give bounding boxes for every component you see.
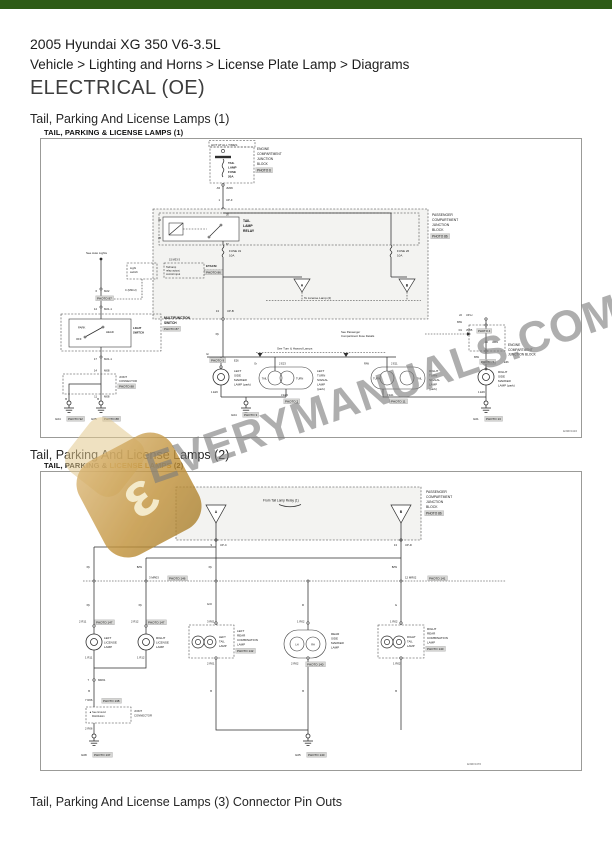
svg-text:M22: M22 bbox=[104, 289, 110, 293]
svg-text:2 R06: 2 R06 bbox=[85, 727, 93, 731]
svg-text:PHOTO 86: PHOTO 86 bbox=[206, 271, 221, 275]
svg-text:Pp: Pp bbox=[216, 332, 220, 336]
svg-text:LEFT: LEFT bbox=[237, 629, 245, 633]
ground-g01 bbox=[481, 401, 491, 412]
svg-text:UP-H: UP-H bbox=[466, 313, 472, 317]
svg-text:RELAY: RELAY bbox=[243, 229, 255, 233]
svg-text:2 R02: 2 R02 bbox=[291, 662, 299, 666]
svg-text:A5: A5 bbox=[217, 186, 221, 190]
svg-text:PHOTO 9: PHOTO 9 bbox=[211, 359, 224, 363]
svg-text:See Auto Lights: See Auto Lights bbox=[86, 251, 108, 255]
svg-text:REAR: REAR bbox=[237, 634, 246, 638]
svg-text:PASSENGER: PASSENGER bbox=[426, 490, 447, 494]
svg-text:relay actuat.: relay actuat. bbox=[166, 269, 180, 273]
svg-text:PHOTO 6: PHOTO 6 bbox=[257, 169, 271, 173]
svg-text:BLOCK: BLOCK bbox=[432, 228, 444, 232]
svg-text:COMPARTMENT: COMPARTMENT bbox=[257, 152, 282, 156]
svg-text:7 R06: 7 R06 bbox=[85, 698, 93, 702]
svg-text:Gr: Gr bbox=[206, 352, 209, 356]
svg-text:From Tail Lamp Relay (1): From Tail Lamp Relay (1) bbox=[263, 499, 299, 503]
footer-caption: Tail, Parking And License Lamps (3) Conn… bbox=[30, 795, 342, 809]
svg-text:M08: M08 bbox=[104, 369, 110, 373]
svg-text:REAR: REAR bbox=[331, 632, 340, 636]
svg-text:FUSE 26: FUSE 26 bbox=[397, 249, 410, 253]
svg-text:TAIL: TAIL bbox=[243, 219, 250, 223]
svg-text:B/W: B/W bbox=[457, 320, 462, 324]
svg-text:switch: switch bbox=[130, 270, 138, 274]
svg-text:LAMP: LAMP bbox=[331, 646, 339, 650]
svg-text:MARKER: MARKER bbox=[234, 378, 248, 382]
svg-text:17: 17 bbox=[94, 357, 98, 361]
svg-text:Pp: Pp bbox=[139, 603, 143, 607]
svg-text:PHOTO 88: PHOTO 88 bbox=[119, 385, 134, 389]
svg-text:LEFT: LEFT bbox=[104, 636, 112, 640]
svg-text:JUNCTION: JUNCTION bbox=[426, 500, 444, 504]
svg-text:12 MR02: 12 MR02 bbox=[405, 576, 417, 580]
ground-g04 bbox=[64, 401, 74, 412]
svg-text:2 R12: 2 R12 bbox=[131, 620, 139, 624]
svg-text:3 MR03: 3 MR03 bbox=[149, 576, 159, 580]
svg-text:TAIL: TAIL bbox=[228, 161, 235, 165]
svg-text:JUNCTION: JUNCTION bbox=[432, 223, 450, 227]
svg-text:PHOTO 147: PHOTO 147 bbox=[148, 621, 165, 625]
svg-text:MR01: MR01 bbox=[98, 678, 106, 682]
svg-text:LAMP: LAMP bbox=[407, 644, 415, 648]
ground-g05-photo140 bbox=[303, 734, 313, 745]
svg-text:PHOTO 138: PHOTO 138 bbox=[103, 699, 120, 703]
svg-text:PARK: PARK bbox=[78, 326, 86, 330]
svg-text:14: 14 bbox=[94, 307, 98, 311]
svg-text:13: 13 bbox=[216, 309, 220, 313]
svg-text:R/W: R/W bbox=[364, 362, 370, 366]
svg-text:B: B bbox=[395, 689, 397, 693]
svg-text:LICENSE: LICENSE bbox=[156, 641, 169, 645]
svg-text:1 R11: 1 R11 bbox=[85, 656, 93, 660]
svg-text:JOINT: JOINT bbox=[134, 709, 142, 713]
svg-text:1 R02: 1 R02 bbox=[390, 620, 398, 624]
svg-text:M21-1: M21-1 bbox=[104, 307, 112, 311]
svg-text:MARKER: MARKER bbox=[498, 379, 512, 383]
see-turn-hazard-line bbox=[256, 353, 386, 358]
svg-text:ETACM: ETACM bbox=[206, 264, 217, 268]
svg-text:1 E36: 1 E36 bbox=[478, 390, 485, 394]
svg-text:TAIL: TAIL bbox=[407, 640, 413, 644]
svg-text:1 R02: 1 R02 bbox=[393, 662, 401, 666]
svg-text:B/W: B/W bbox=[137, 565, 143, 569]
svg-text:22: 22 bbox=[459, 313, 462, 317]
svg-text:G04: G04 bbox=[55, 417, 61, 421]
svg-text:B: B bbox=[88, 689, 90, 693]
svg-text:D1: D1 bbox=[459, 328, 463, 332]
svg-text:Tail lamp: Tail lamp bbox=[166, 265, 177, 269]
diagram1-header: TAIL, PARKING & LICENSE LAMPS (1) bbox=[44, 128, 183, 137]
svg-text:COMBINATION: COMBINATION bbox=[237, 638, 258, 642]
svg-text:G01: G01 bbox=[473, 417, 479, 421]
svg-text:SIDE: SIDE bbox=[331, 637, 338, 641]
ground-g05 bbox=[96, 401, 106, 412]
left-license-lamp bbox=[86, 634, 102, 650]
svg-text:LAMP: LAMP bbox=[219, 644, 227, 648]
svg-text:R: R bbox=[302, 603, 304, 607]
svg-text:PHOTO 140: PHOTO 140 bbox=[307, 663, 324, 667]
breadcrumb: Vehicle > Lighting and Horns > License P… bbox=[30, 57, 409, 72]
manual-page: 2005 Hyundai XG 350 V6-3.5L Vehicle > Li… bbox=[0, 0, 612, 866]
svg-text:LEFT: LEFT bbox=[219, 635, 226, 639]
doc-title: 2005 Hyundai XG 350 V6-3.5L bbox=[30, 36, 221, 52]
svg-text:PHOTO 86: PHOTO 86 bbox=[426, 512, 442, 516]
svg-text:E39F3476: E39F3476 bbox=[467, 762, 481, 766]
svg-text:LAMP: LAMP bbox=[104, 645, 112, 649]
left-ground-wiring bbox=[86, 650, 146, 734]
svg-text:LAMP: LAMP bbox=[243, 224, 253, 228]
svg-text:1: 1 bbox=[218, 198, 220, 202]
svg-text:RIGHT: RIGHT bbox=[427, 627, 437, 631]
svg-text:COMPARTMENT: COMPARTMENT bbox=[426, 495, 452, 499]
svg-text:BLOCK: BLOCK bbox=[426, 505, 438, 509]
svg-text:FUSE 31: FUSE 31 bbox=[229, 249, 242, 253]
svg-text:JUNCTION: JUNCTION bbox=[257, 157, 274, 161]
svg-text:UP-B: UP-B bbox=[227, 309, 234, 313]
svg-text:SIDE: SIDE bbox=[234, 374, 241, 378]
tail-lamp-relay bbox=[163, 217, 239, 241]
svg-text:LH: LH bbox=[295, 644, 298, 647]
svg-text:2 R01: 2 R01 bbox=[207, 662, 215, 666]
svg-text:Distribution: Distribution bbox=[92, 715, 105, 718]
left-rear-combination-lamp bbox=[189, 625, 234, 658]
svg-text:PHOTO 140: PHOTO 140 bbox=[308, 753, 325, 757]
svg-text:E39F3416: E39F3416 bbox=[563, 429, 577, 433]
svg-text:2 R11: 2 R11 bbox=[79, 620, 87, 624]
svg-text:B: B bbox=[210, 689, 212, 693]
svg-text:LAMP: LAMP bbox=[427, 641, 435, 645]
svg-text:PHOTO 137: PHOTO 137 bbox=[94, 753, 111, 757]
svg-text:control input: control input bbox=[166, 272, 180, 276]
svg-text:Compartment Fuse Details: Compartment Fuse Details bbox=[341, 334, 375, 338]
svg-text:LAMP: LAMP bbox=[156, 645, 164, 649]
svg-text:10A: 10A bbox=[397, 254, 402, 258]
right-license-lamp bbox=[138, 634, 154, 650]
svg-text:M21-1: M21-1 bbox=[104, 357, 112, 361]
svg-text:LAMP (park): LAMP (park) bbox=[234, 383, 251, 387]
svg-text:RIGHT: RIGHT bbox=[156, 636, 166, 640]
svg-text:1 E26: 1 E26 bbox=[211, 390, 218, 394]
right-ground-wiring bbox=[215, 657, 402, 734]
svg-text:LAMP: LAMP bbox=[237, 643, 245, 647]
svg-text:BLOCK: BLOCK bbox=[257, 162, 269, 166]
svg-text:LIGHT: LIGHT bbox=[133, 326, 142, 330]
svg-text:B/W: B/W bbox=[392, 565, 398, 569]
svg-text:JM05: JM05 bbox=[466, 328, 473, 332]
svg-text:TAIL: TAIL bbox=[262, 377, 268, 381]
rear-side-marker-lamp bbox=[284, 630, 326, 658]
svg-text:TAIL: TAIL bbox=[219, 640, 225, 644]
svg-text:15 M33-3: 15 M33-3 bbox=[169, 258, 181, 262]
svg-text:G: G bbox=[395, 603, 397, 607]
svg-text:PHOTO 86: PHOTO 86 bbox=[432, 235, 448, 239]
svg-text:6: 6 bbox=[95, 289, 97, 293]
svg-text:To License Lamp (2): To License Lamp (2) bbox=[304, 296, 331, 300]
svg-text:RIGHT: RIGHT bbox=[407, 635, 416, 639]
svg-text:Pp: Pp bbox=[209, 565, 213, 569]
svg-text:PASSENGER: PASSENGER bbox=[432, 213, 453, 217]
svg-text:2 E23: 2 E23 bbox=[279, 362, 286, 366]
svg-text:PHOTO 142: PHOTO 142 bbox=[237, 649, 254, 653]
multifunction-switch bbox=[61, 314, 161, 374]
svg-text:G/O: G/O bbox=[207, 602, 213, 606]
svg-text:1 R12: 1 R12 bbox=[137, 656, 145, 660]
svg-text:UP-F: UP-F bbox=[226, 198, 233, 202]
svg-text:M08: M08 bbox=[104, 395, 110, 399]
svg-text:Pp: Pp bbox=[87, 603, 91, 607]
svg-text:PHOTO 141: PHOTO 141 bbox=[429, 577, 446, 581]
svg-text:HEAD: HEAD bbox=[106, 330, 114, 334]
svg-text:COMBINATION: COMBINATION bbox=[427, 636, 448, 640]
svg-text:LEFT: LEFT bbox=[317, 369, 325, 373]
svg-text:PHOTO 147: PHOTO 147 bbox=[96, 621, 113, 625]
svg-text:CONNECTOR: CONNECTOR bbox=[134, 714, 152, 718]
ground-g08 bbox=[89, 734, 99, 745]
svg-text:B: B bbox=[97, 397, 99, 401]
svg-text:E26: E26 bbox=[234, 359, 239, 363]
svg-text:Pp: Pp bbox=[87, 565, 91, 569]
svg-text:UP-D: UP-D bbox=[405, 543, 412, 547]
svg-text:20A: 20A bbox=[228, 175, 234, 179]
svg-text:REAR: REAR bbox=[427, 632, 436, 636]
svg-text:CONNECTOR: CONNECTOR bbox=[119, 379, 137, 383]
svg-text:SWITCH: SWITCH bbox=[164, 321, 177, 325]
svg-text:SIGNAL: SIGNAL bbox=[317, 378, 328, 382]
svg-text:PHOTO 87: PHOTO 87 bbox=[164, 327, 179, 331]
svg-text:◄ See Ground: ◄ See Ground bbox=[89, 711, 106, 714]
svg-text:PHOTO 146: PHOTO 146 bbox=[169, 577, 186, 581]
svg-text:RH: RH bbox=[311, 644, 315, 647]
svg-text:TURN: TURN bbox=[317, 374, 325, 378]
svg-text:PHOTO 87: PHOTO 87 bbox=[97, 297, 112, 301]
svg-text:HOT AT ALL TIMES: HOT AT ALL TIMES bbox=[211, 143, 237, 147]
svg-text:13: 13 bbox=[394, 543, 398, 547]
svg-text:SWITCH: SWITCH bbox=[133, 331, 144, 335]
svg-text:FUSE: FUSE bbox=[228, 170, 236, 174]
svg-text:MULTIFUNCTION: MULTIFUNCTION bbox=[164, 316, 191, 320]
svg-text:G05: G05 bbox=[295, 753, 301, 757]
svg-text:9: 9 bbox=[210, 543, 212, 547]
svg-text:UP-C: UP-C bbox=[220, 543, 227, 547]
svg-text:14: 14 bbox=[94, 369, 98, 373]
svg-text:ENGINE: ENGINE bbox=[257, 147, 269, 151]
svg-text:PHOTO 92: PHOTO 92 bbox=[68, 417, 83, 421]
svg-text:See Turn & Hazard Lamps: See Turn & Hazard Lamps bbox=[277, 347, 313, 351]
right-rear-combination-lamp bbox=[378, 625, 424, 658]
svg-text:LAMP (park): LAMP (park) bbox=[498, 384, 515, 388]
svg-text:7: 7 bbox=[87, 678, 89, 682]
svg-text:PHOTO 140: PHOTO 140 bbox=[427, 647, 444, 651]
svg-text:OFF: OFF bbox=[76, 337, 82, 341]
svg-text:LICENSE: LICENSE bbox=[104, 641, 117, 645]
svg-text:10A: 10A bbox=[229, 254, 234, 258]
svg-text:1 R02: 1 R02 bbox=[297, 620, 305, 624]
svg-text:LAMP: LAMP bbox=[228, 166, 237, 170]
svg-text:Gr: Gr bbox=[254, 362, 257, 366]
svg-text:COMPARTMENT: COMPARTMENT bbox=[432, 218, 458, 222]
svg-text:B: B bbox=[65, 397, 67, 401]
svg-text:C (M33-2): C (M33-2) bbox=[125, 288, 137, 292]
browser-theme-bar bbox=[0, 0, 612, 9]
svg-text:PHOTO 13: PHOTO 13 bbox=[486, 417, 501, 421]
page-heading: ELECTRICAL (OE) bbox=[30, 77, 205, 100]
section1-title: Tail, Parking And License Lamps (1) bbox=[30, 112, 229, 126]
svg-text:MARKER: MARKER bbox=[331, 641, 345, 645]
svg-text:TURN: TURN bbox=[296, 377, 303, 381]
svg-text:G08: G08 bbox=[81, 753, 87, 757]
svg-text:LEFT: LEFT bbox=[234, 369, 242, 373]
svg-text:JM06: JM06 bbox=[226, 186, 233, 190]
svg-text:3 R01: 3 R01 bbox=[207, 620, 215, 624]
from-tail-lamp-relay-box bbox=[176, 487, 421, 541]
svg-text:B: B bbox=[302, 689, 304, 693]
